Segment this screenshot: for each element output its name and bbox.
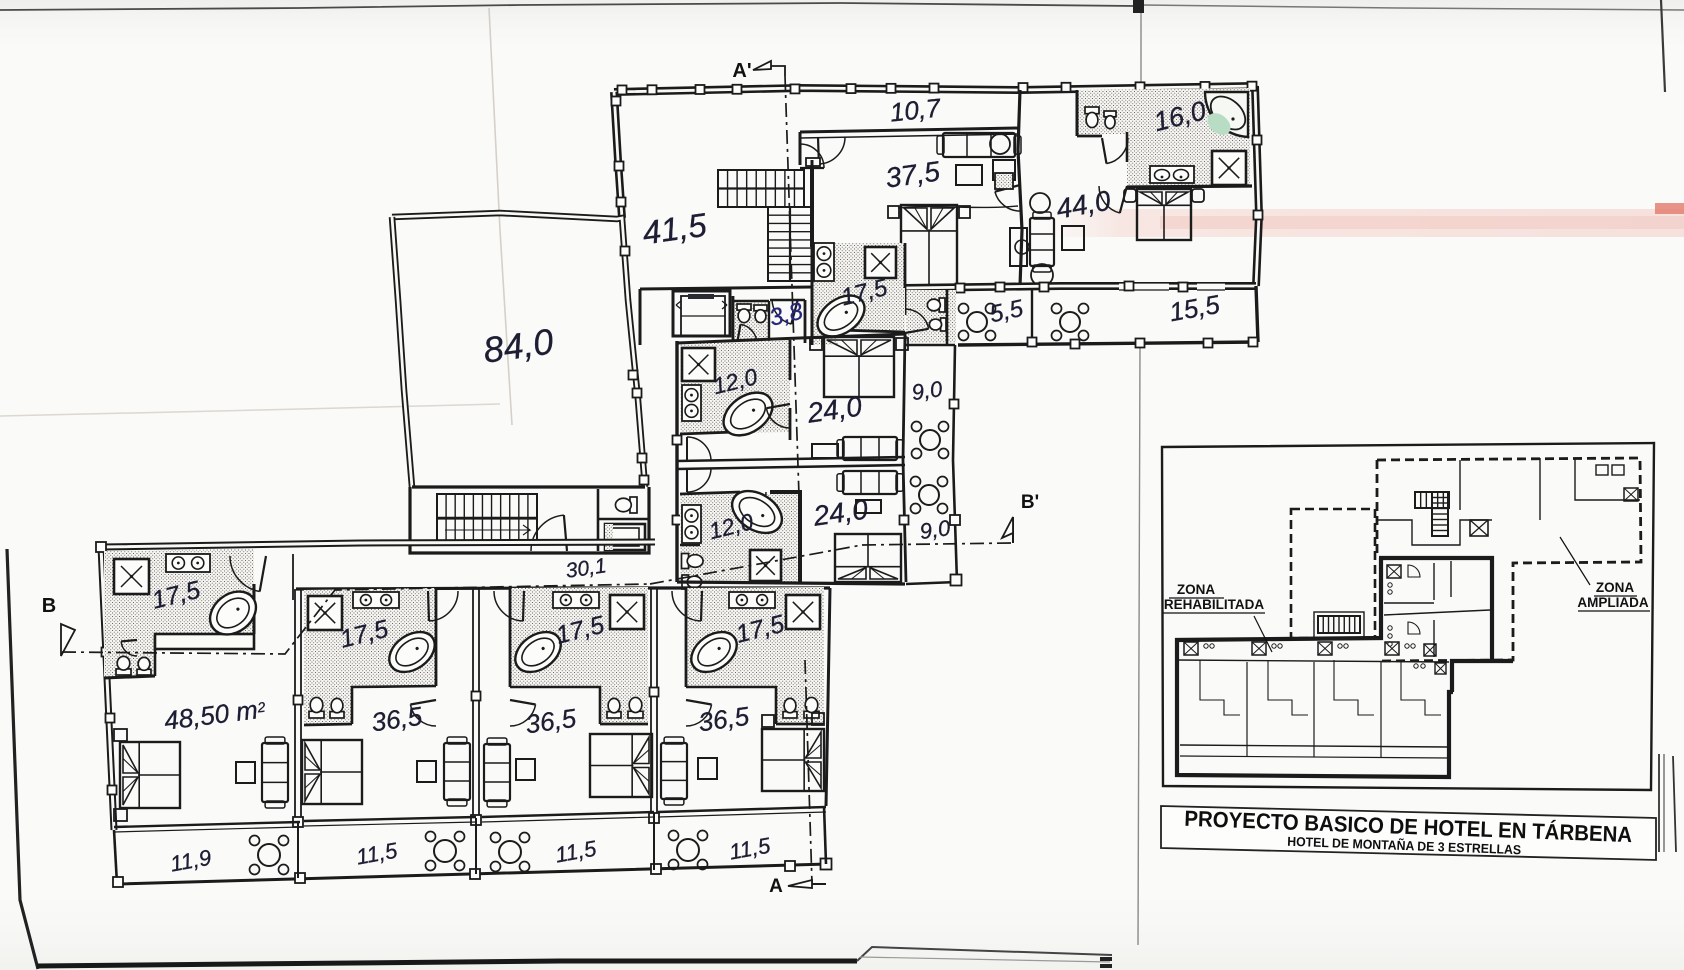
svg-text:REHABILITADA: REHABILITADA	[1164, 597, 1264, 612]
svg-text:A: A	[769, 876, 783, 897]
svg-text:9,0: 9,0	[918, 515, 953, 544]
svg-text:B: B	[42, 595, 56, 617]
svg-text:10,7: 10,7	[888, 92, 943, 127]
svg-text:AMPLIADA: AMPLIADA	[1577, 595, 1648, 610]
svg-text:9,0: 9,0	[910, 376, 945, 405]
svg-text:ZONA: ZONA	[1177, 582, 1215, 597]
svg-text:B': B'	[1021, 492, 1039, 513]
svg-text:A': A'	[732, 60, 751, 82]
svg-text:ZONA: ZONA	[1596, 580, 1634, 595]
